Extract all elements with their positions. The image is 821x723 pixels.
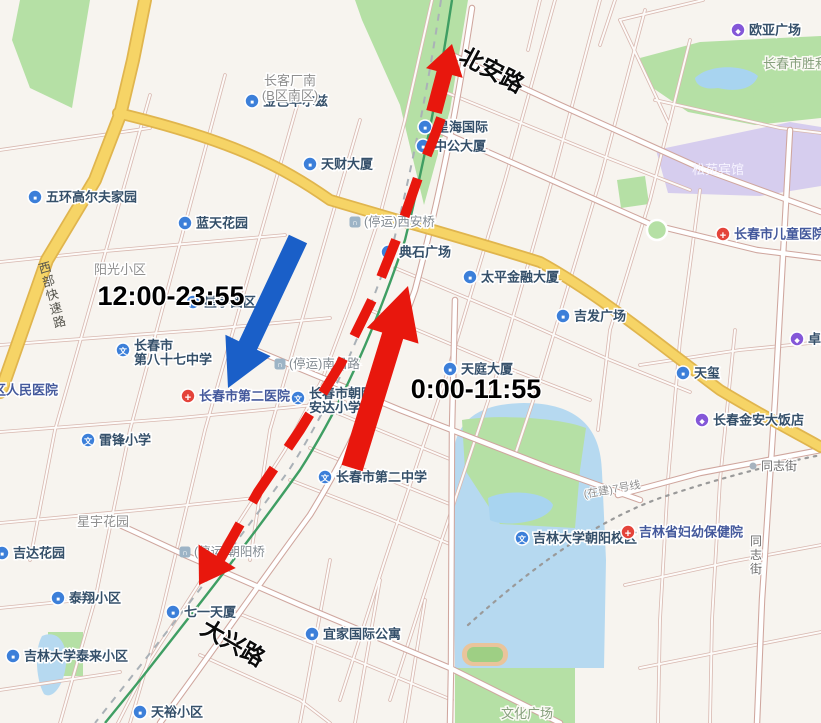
label-text: 蓝天花园	[196, 216, 248, 231]
label-text: (停运)南昌路	[289, 356, 360, 371]
icon-glyph: ■	[468, 276, 472, 282]
maternity-hospital[interactable]: +吉林省妇幼保健院	[621, 525, 743, 540]
label-text: 天裕小区	[151, 705, 203, 720]
label-text: (停运)西安桥	[364, 214, 435, 229]
icon-glyph: ■	[171, 611, 175, 617]
icon-glyph: 文	[119, 346, 128, 356]
time-1200-2355: 12:00-23:55	[97, 281, 244, 311]
label-text: 雷锋小学	[99, 433, 151, 448]
shengli-park: 长春市胜利	[763, 56, 821, 71]
icon-glyph: +	[185, 392, 191, 404]
jifa-plaza[interactable]: ■吉发广场	[556, 309, 626, 324]
map-screenshot: ◆欧亚广场长春市胜利松苑宾馆■金色华尔兹■星海国际长客厂南(B区南区)■天财大厦…	[0, 0, 821, 723]
icon-glyph: ∩	[277, 360, 283, 369]
icon-glyph: ∩	[352, 218, 358, 227]
label-text: 长春市第二中学	[336, 470, 427, 485]
label-text: 松苑宾馆	[692, 162, 744, 177]
changke-south: 长客厂南(B区南区)	[262, 73, 318, 103]
xingyu-garden: 星宇花园	[77, 514, 129, 529]
label-text: 文化广场	[501, 706, 553, 721]
label-text: 吉发广场	[574, 309, 626, 324]
icon-glyph: ◆	[794, 338, 800, 345]
label-text: 天财大厦	[321, 157, 374, 172]
icon-glyph: 文	[518, 534, 527, 544]
roundabout	[647, 220, 667, 240]
icon-glyph: ◆	[699, 419, 705, 426]
yangguang-community: 阳光小区	[94, 262, 146, 277]
icon-glyph: ■	[250, 100, 254, 106]
label-text: 泰翔小区	[68, 591, 121, 606]
jlu-tailai[interactable]: ■吉林大学泰来小区	[6, 649, 128, 664]
label-text: 12:00-23:55	[97, 281, 244, 311]
taixiang-community[interactable]: ■泰翔小区	[51, 591, 121, 606]
district-people-hospital[interactable]: +区人民医院	[0, 383, 58, 398]
qiyi-bldg[interactable]: ■七一天厦	[166, 605, 237, 620]
label-text: 典石广场	[399, 245, 451, 260]
icon-glyph: ■	[0, 552, 4, 558]
label-text: 天玺	[694, 366, 720, 381]
label-text: 宜家国际公寓	[323, 627, 401, 642]
label-text: 阳光小区	[94, 262, 146, 277]
label-text: 中公大厦	[434, 139, 487, 154]
tiancai-bldg[interactable]: ■天财大厦	[303, 157, 374, 172]
label-text: 长春市胜利	[763, 56, 821, 71]
icon-glyph: 文	[294, 394, 303, 404]
icon-glyph: ■	[310, 633, 314, 639]
icon-glyph: ◆	[735, 29, 741, 36]
label-text: 欧亚广场	[749, 23, 801, 38]
icon-glyph: ■	[56, 597, 60, 603]
icon-glyph: ■	[423, 126, 427, 132]
label-text: 五环高尔夫家园	[46, 190, 137, 205]
tongzhi-street-vertical: 同志街	[750, 534, 762, 576]
label-text: 吉达花园	[13, 546, 65, 561]
label-text: 长客厂南(B区南区)	[262, 73, 318, 103]
icon-glyph: ■	[138, 711, 142, 717]
icon-glyph: ■	[561, 315, 565, 321]
label-text: 星宇花园	[77, 514, 129, 529]
label-text: 同志街	[761, 459, 797, 473]
small-green-1	[617, 176, 649, 208]
xinghai-intl[interactable]: ■星海国际	[418, 120, 488, 135]
label-text: 卓展	[808, 332, 821, 347]
icon-glyph: ∩	[182, 548, 188, 557]
label-text: 吉林大学泰来小区	[24, 649, 128, 664]
icon-glyph: ■	[681, 372, 685, 378]
songyuan-hotel: 松苑宾馆	[692, 162, 744, 177]
icon-glyph: +	[720, 230, 726, 242]
label-text: 长春市儿童医院	[734, 227, 821, 242]
small-green-2	[753, 90, 774, 110]
icon-glyph: ■	[183, 222, 187, 228]
label-text: 同志街	[750, 534, 762, 576]
ouya-plaza[interactable]: ◆欧亚广场	[731, 23, 801, 38]
map-canvas[interactable]: ◆欧亚广场长春市胜利松苑宾馆■金色华尔兹■星海国际长客厂南(B区南区)■天财大厦…	[0, 0, 821, 723]
leifeng-primary[interactable]: 文雷锋小学	[81, 433, 151, 448]
jlu-chaoyang[interactable]: 文吉林大学朝阳校区	[515, 531, 637, 546]
icon-glyph: 文	[321, 473, 330, 483]
wenhua-square: 文化广场	[501, 706, 553, 721]
label-text: 0:00-11:55	[411, 374, 542, 404]
lantian-garden[interactable]: ■蓝天花园	[178, 216, 248, 231]
tianxi[interactable]: ■天玺	[676, 366, 720, 381]
icon-glyph: +	[625, 528, 631, 540]
road-dot-icon	[750, 463, 757, 470]
icon-glyph: ■	[308, 163, 312, 169]
label-text: 区人民医院	[0, 383, 58, 398]
label-text: 太平金融大厦	[480, 270, 560, 285]
icon-glyph: ■	[33, 196, 37, 202]
time-000-1155: 0:00-11:55	[411, 374, 542, 404]
stadium-field	[467, 647, 503, 662]
icon-glyph: 文	[84, 436, 93, 446]
label-text: 吉林省妇幼保健院	[639, 525, 743, 540]
tianyu-community[interactable]: ■天裕小区	[133, 705, 203, 720]
label-text: 长春金安大饭店	[713, 413, 804, 428]
label-text: 长春市第二医院	[199, 389, 290, 404]
icon-glyph: ■	[11, 655, 15, 661]
